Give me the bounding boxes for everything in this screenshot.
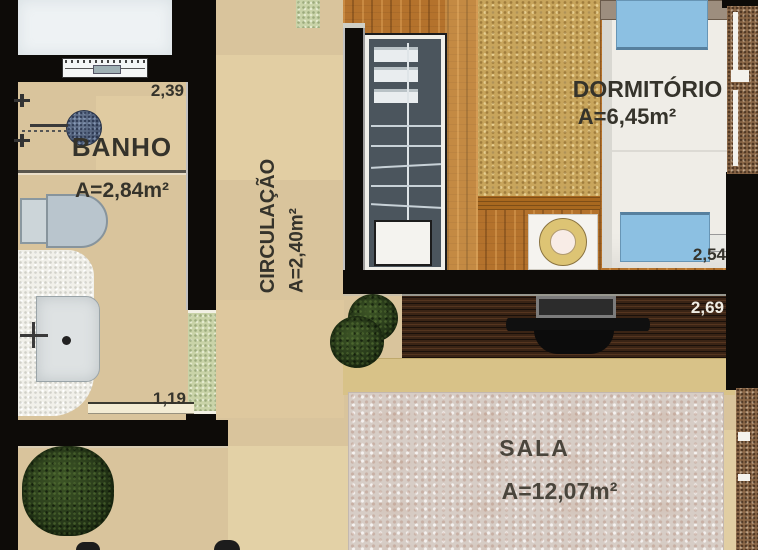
wardrobe-rod — [407, 43, 409, 243]
window-pane — [93, 65, 121, 74]
window-sill — [738, 474, 750, 481]
wardrobe-drawer — [374, 220, 432, 266]
dimension-banho: 2,39 — [130, 82, 184, 99]
shower-arm — [30, 124, 68, 127]
wardrobe-hanger — [371, 163, 441, 169]
chair-top — [76, 542, 100, 550]
floor-patch — [216, 300, 344, 418]
wardrobe-shelf — [374, 47, 418, 62]
wall — [726, 172, 758, 390]
shower-arm-dashes — [22, 130, 68, 132]
plant-icon — [330, 316, 384, 368]
wardrobe-hanger — [371, 145, 441, 147]
dormitorio-rug-edge — [478, 196, 600, 210]
dimension-banho-door: 1,19 — [136, 390, 186, 407]
room-name-circulacao: CIRCULAÇÃO — [258, 131, 278, 321]
room-area-dormitorio: A=6,45m² — [552, 106, 702, 128]
room-area-banho: A=2,84m² — [52, 180, 192, 201]
plant-icon — [22, 446, 114, 536]
bed-edge — [602, 0, 612, 268]
sala-floor-band — [343, 358, 735, 395]
service-box — [18, 0, 172, 55]
window-sill — [738, 432, 750, 441]
sala-rug — [348, 392, 724, 550]
floor-plan: 2,39 BANHO A=2,84m² CIRCULAÇÃO A=2,40m² … — [0, 0, 758, 550]
window-sill — [733, 90, 738, 166]
drain-dot — [62, 336, 71, 345]
tv-base — [534, 330, 614, 354]
wardrobe-shelf — [374, 89, 418, 103]
room-name-dormitorio: DORMITÓRIO — [560, 78, 735, 101]
wall — [18, 420, 228, 446]
dimension-sala-wall: 2,69 — [672, 299, 724, 316]
wall — [343, 270, 758, 294]
pillow-icon — [616, 0, 708, 50]
banho-window-icon — [62, 58, 148, 78]
wardrobe-shelf — [374, 67, 418, 82]
faucet-icon — [32, 322, 35, 348]
tap-icon — [20, 134, 24, 147]
door-opening-icon — [188, 310, 216, 414]
wardrobe-hanger — [371, 203, 441, 209]
toilet-bowl — [46, 194, 108, 248]
bedside-ring-center — [550, 229, 576, 255]
room-area-circulacao: A=2,40m² — [288, 186, 307, 316]
room-area-sala: A=12,07m² — [462, 480, 657, 503]
window-hatch — [65, 60, 145, 63]
tv-icon — [536, 296, 616, 318]
window-sill — [733, 12, 738, 70]
bed-sheet-line — [612, 150, 728, 152]
chair-top — [214, 540, 240, 550]
wardrobe-hanger — [371, 185, 441, 187]
tap-icon — [20, 94, 24, 107]
wardrobe-hanger — [371, 125, 441, 127]
window-icon — [736, 388, 758, 550]
dimension-dormitorio: 2,54 — [676, 246, 726, 263]
shower-partition — [18, 170, 186, 173]
room-name-banho: BANHO — [52, 134, 192, 160]
wood-highlight — [445, 0, 478, 272]
bedside-table-icon — [528, 214, 598, 270]
door-opening-icon — [296, 0, 320, 28]
wall — [0, 0, 18, 550]
wall — [172, 0, 216, 82]
floor-patch — [216, 55, 344, 180]
wall — [343, 28, 365, 274]
room-name-sala: SALA — [467, 437, 602, 460]
wall-cap — [343, 23, 365, 28]
